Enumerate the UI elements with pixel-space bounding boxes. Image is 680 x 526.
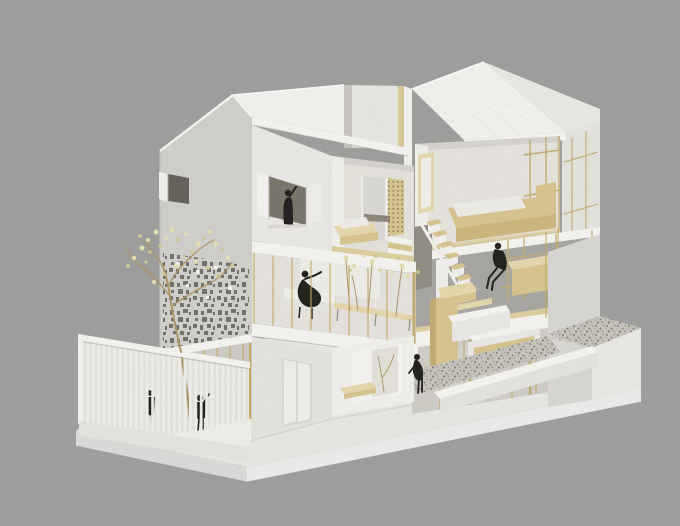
model-photo: Photograph of a white architectural scal… (0, 0, 680, 526)
photo-grain (0, 0, 680, 526)
model-photo-svg: Photograph of a white architectural scal… (0, 0, 680, 526)
